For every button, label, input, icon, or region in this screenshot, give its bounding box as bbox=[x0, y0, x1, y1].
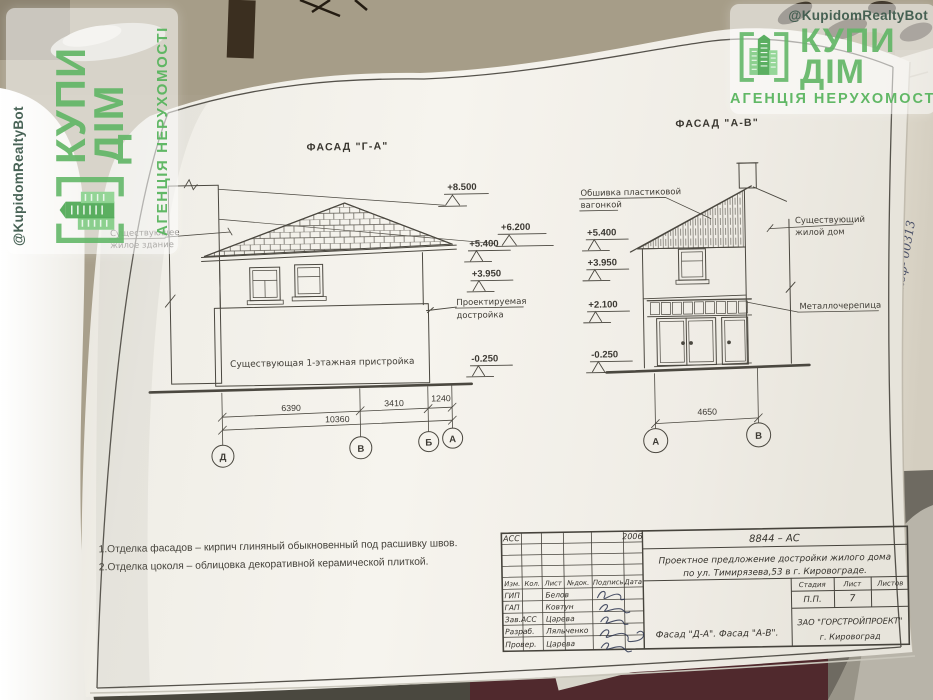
svg-text:Изм.: Изм. bbox=[504, 580, 520, 588]
watermark-handle: @KupidomRealtyBot bbox=[6, 8, 26, 254]
svg-text:+5.400: +5.400 bbox=[469, 238, 499, 250]
watermark-tagline: АГЕНЦІЯ НЕРУХОМОСТІ bbox=[154, 8, 178, 254]
tb-sheet-number: 7 bbox=[849, 593, 855, 604]
watermark-brand: КУПИ ДІМ bbox=[52, 47, 128, 164]
watermark-handle: @KupidomRealtyBot bbox=[730, 4, 933, 23]
svg-text:3410: 3410 bbox=[384, 398, 404, 408]
svg-text:Ляльченко: Ляльченко bbox=[545, 626, 589, 636]
facade-right-title: ФАСАД "А-В" bbox=[675, 117, 759, 130]
svg-text:ГАП: ГАП bbox=[505, 603, 520, 612]
svg-text:Стадия: Стадия bbox=[799, 581, 826, 589]
svg-text:10360: 10360 bbox=[325, 414, 350, 424]
svg-text:-0.250: -0.250 bbox=[591, 349, 618, 360]
svg-text:6390: 6390 bbox=[281, 403, 301, 413]
kupidim-logo-icon bbox=[736, 29, 792, 85]
svg-text:+3.950: +3.950 bbox=[472, 268, 502, 280]
tb-year: 2006 bbox=[622, 532, 643, 541]
svg-text:Лист: Лист bbox=[544, 579, 563, 587]
tb-doc-number: 8844 – АС bbox=[749, 533, 800, 545]
svg-text:4650: 4650 bbox=[697, 407, 717, 417]
svg-text:жилой дом: жилой дом bbox=[795, 227, 845, 238]
tb-code: АСС bbox=[502, 534, 520, 543]
svg-text:Царева: Царева bbox=[546, 614, 575, 624]
svg-text:+2.100: +2.100 bbox=[588, 299, 618, 311]
svg-text:достройка: достройка bbox=[456, 310, 503, 321]
photo-of-drawing: коф- 00313 ФАСАД "Г-А" Существующее жило… bbox=[0, 0, 933, 700]
svg-text:Подпись: Подпись bbox=[593, 578, 624, 587]
facade-left-title: ФАСАД "Г-А" bbox=[307, 140, 389, 153]
svg-text:вагонкой: вагонкой bbox=[581, 200, 622, 211]
svg-text:Кол.: Кол. bbox=[524, 580, 540, 588]
svg-text:В: В bbox=[755, 431, 762, 442]
watermark-left: @KupidomRealtyBot КУПИ ДІМ АГЕНЦІЯ НЕРУХ… bbox=[6, 8, 178, 254]
tb-organization: ЗАО "ГОРСТРОЙПРОЕКТ" bbox=[797, 614, 902, 627]
svg-text:Зав.АСС: Зав.АСС bbox=[505, 615, 538, 625]
svg-text:Разраб.: Разраб. bbox=[505, 627, 535, 637]
tb-stage: П.П. bbox=[803, 595, 821, 605]
kupidim-logo-icon bbox=[52, 172, 128, 248]
label-existing-house: Существующий bbox=[795, 215, 865, 226]
svg-text:А: А bbox=[449, 434, 456, 445]
svg-text:Провер.: Провер. bbox=[505, 640, 536, 650]
svg-text:Дата: Дата bbox=[623, 578, 642, 586]
tb-sheet-title: Фасад "Д-А". Фасад "А-В". bbox=[656, 629, 779, 641]
svg-text:+5.400: +5.400 bbox=[587, 227, 617, 239]
svg-text:+6.200: +6.200 bbox=[501, 222, 531, 234]
svg-text:Ковтун: Ковтун bbox=[546, 602, 574, 611]
svg-text:ГИП: ГИП bbox=[504, 591, 520, 600]
svg-text:г. Кировоград: г. Кировоград bbox=[820, 631, 881, 642]
label-metal-tile: Металлочерепица bbox=[799, 301, 881, 312]
svg-text:Б: Б bbox=[425, 438, 432, 449]
svg-text:№док.: №док. bbox=[566, 579, 589, 587]
svg-text:Царева: Царева bbox=[546, 639, 575, 649]
svg-text:-0.250: -0.250 bbox=[471, 353, 498, 364]
svg-text:1240: 1240 bbox=[431, 393, 451, 403]
svg-text:Листов: Листов bbox=[876, 579, 903, 587]
svg-text:В: В bbox=[357, 444, 364, 455]
label-proposed: Проектируемая bbox=[456, 297, 526, 308]
svg-text:Лист: Лист bbox=[842, 580, 862, 588]
watermark-tagline: АГЕНЦІЯ НЕРУХОМОСТІ bbox=[730, 91, 933, 114]
label-siding: Обшивка пластиковой bbox=[580, 187, 681, 199]
watermark-right: @KupidomRealtyBot КУПИ ДІМ АГЕНЦІЯ НЕРУХ… bbox=[730, 4, 933, 114]
svg-text:Белов: Белов bbox=[545, 590, 569, 599]
svg-text:+8.500: +8.500 bbox=[447, 182, 477, 194]
svg-text:Д: Д bbox=[219, 452, 226, 463]
watermark-brand: КУПИ ДІМ bbox=[800, 26, 896, 87]
svg-text:А: А bbox=[652, 437, 659, 448]
svg-text:+3.950: +3.950 bbox=[588, 257, 618, 269]
